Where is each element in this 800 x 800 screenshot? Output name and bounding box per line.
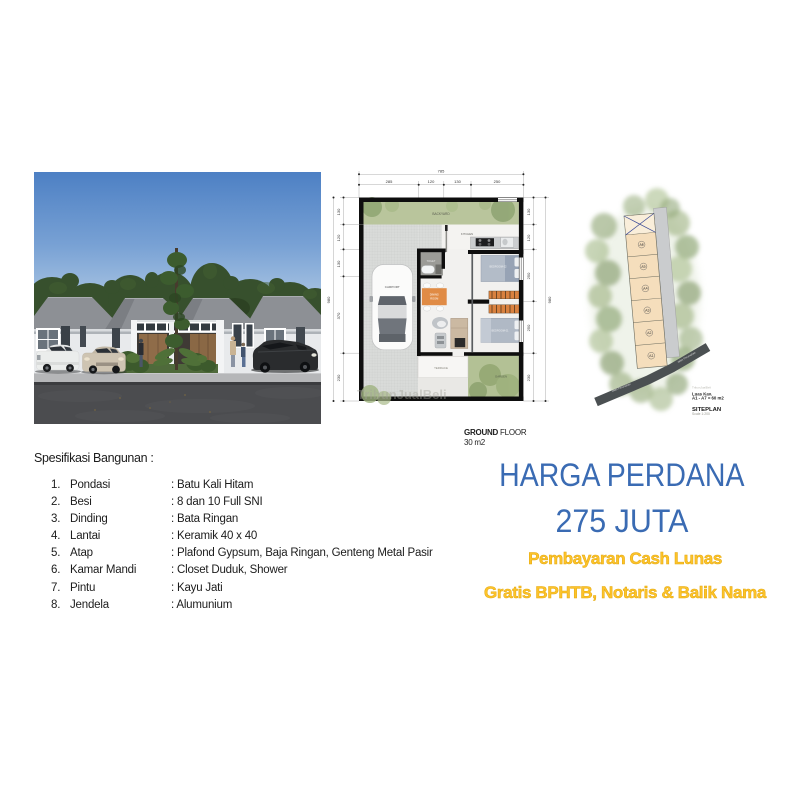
svg-text:250: 250 — [526, 324, 531, 331]
svg-text:785: 785 — [438, 169, 445, 174]
svg-text:A2: A2 — [647, 331, 652, 335]
svg-text:BACKYARD: BACKYARD — [432, 212, 450, 216]
svg-text:ROOM: ROOM — [430, 297, 438, 301]
svg-text:TERRACE: TERRACE — [434, 366, 448, 370]
svg-text:BEDROOM 02: BEDROOM 02 — [489, 265, 507, 269]
svg-text:A4: A4 — [643, 287, 648, 291]
svg-text:130: 130 — [336, 208, 341, 215]
svg-text:A5: A5 — [641, 265, 646, 269]
svg-text:A6: A6 — [639, 243, 644, 247]
svg-text:370: 370 — [336, 312, 341, 319]
svg-text:CARPORT: CARPORT — [385, 285, 400, 289]
svg-text:130: 130 — [336, 260, 341, 267]
svg-text:A3: A3 — [645, 308, 650, 312]
svg-text:980: 980 — [547, 296, 552, 303]
svg-text:230: 230 — [336, 374, 341, 381]
svg-text:TribunJualBeli: TribunJualBeli — [692, 386, 711, 390]
svg-text:250: 250 — [526, 272, 531, 279]
svg-text:120: 120 — [428, 179, 435, 184]
svg-text:980: 980 — [326, 296, 331, 303]
svg-text:KITCHEN: KITCHEN — [461, 232, 473, 236]
svg-text:120: 120 — [526, 234, 531, 241]
svg-text:TribunJualBeli: TribunJualBeli — [357, 387, 447, 402]
svg-text:DINING: DINING — [430, 293, 439, 297]
svg-text:230: 230 — [526, 374, 531, 381]
svg-text:BEDROOM 01: BEDROOM 01 — [491, 329, 509, 333]
svg-text:250: 250 — [494, 179, 501, 184]
svg-text:130: 130 — [526, 208, 531, 215]
svg-text:TOILET: TOILET — [427, 260, 436, 263]
svg-text:A1 - A7 = 60 m2: A1 - A7 = 60 m2 — [692, 396, 724, 401]
svg-text:A1: A1 — [649, 354, 654, 358]
svg-text:Scale 1:200: Scale 1:200 — [692, 412, 710, 416]
svg-text:GARDEN: GARDEN — [495, 375, 507, 379]
svg-text:130: 130 — [454, 179, 461, 184]
svg-text:285: 285 — [386, 179, 393, 184]
svg-text:120: 120 — [336, 234, 341, 241]
